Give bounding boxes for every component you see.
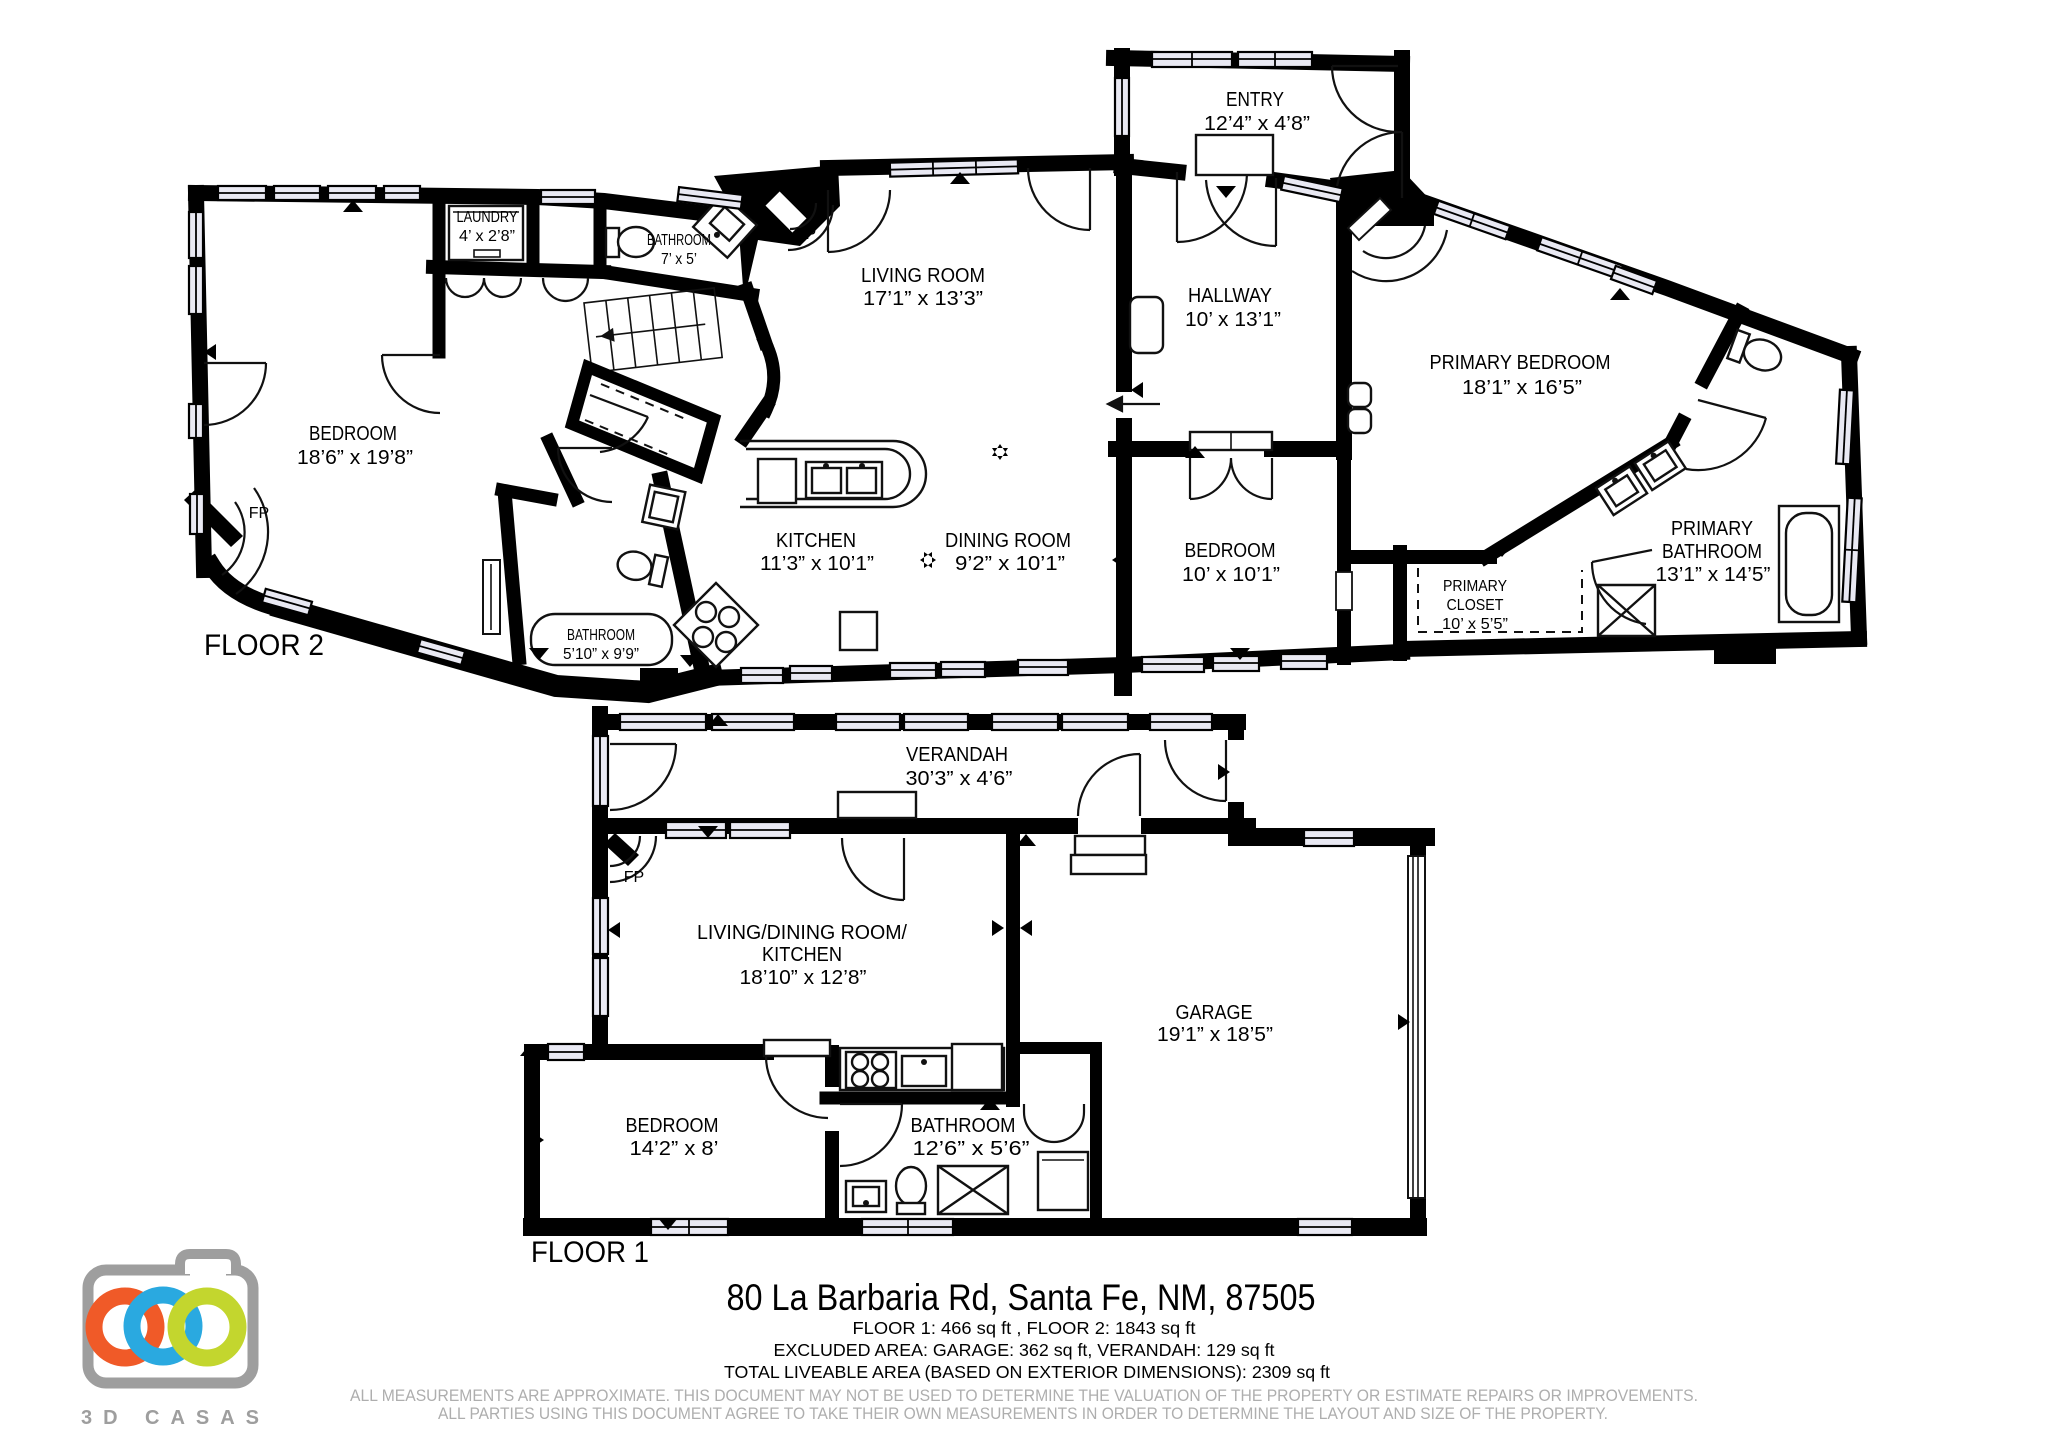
svg-text:5’10” x 9’9”: 5’10” x 9’9” bbox=[563, 646, 639, 663]
svg-text:BEDROOM: BEDROOM bbox=[309, 423, 397, 445]
svg-text:FLOOR 1: 466 sq ft , FLOOR 2:: FLOOR 1: 466 sq ft , FLOOR 2: 1843 sq ft bbox=[853, 1318, 1196, 1338]
svg-text:18’1” x 16’5”: 18’1” x 16’5” bbox=[1462, 377, 1582, 399]
svg-text:CLOSET: CLOSET bbox=[1447, 597, 1504, 614]
svg-text:LIVING ROOM: LIVING ROOM bbox=[861, 265, 985, 287]
svg-text:12’6” x 5’6”: 12’6” x 5’6” bbox=[913, 1138, 1030, 1160]
svg-text:BATHROOM: BATHROOM bbox=[567, 627, 635, 644]
svg-text:FLOOR 2: FLOOR 2 bbox=[204, 629, 324, 662]
svg-text:18’6” x 19’8”: 18’6” x 19’8” bbox=[297, 447, 413, 469]
svg-text:BATHROOM: BATHROOM bbox=[911, 1115, 1016, 1137]
svg-text:FP: FP bbox=[796, 226, 816, 243]
svg-text:3D CASAS: 3D CASAS bbox=[81, 1407, 259, 1429]
svg-text:LIVING/DINING ROOM/: LIVING/DINING ROOM/ bbox=[697, 922, 907, 944]
svg-text:BEDROOM: BEDROOM bbox=[626, 1115, 719, 1137]
svg-text:7’ x 5’: 7’ x 5’ bbox=[661, 251, 697, 268]
svg-text:EXCLUDED AREA: GARAGE: 362 sq: EXCLUDED AREA: GARAGE: 362 sq ft, VERAND… bbox=[774, 1340, 1275, 1360]
svg-text:9’2” x 10’1”: 9’2” x 10’1” bbox=[955, 553, 1065, 575]
svg-text:FP: FP bbox=[249, 505, 269, 522]
svg-text:ALL PARTIES USING THIS DOCUMEN: ALL PARTIES USING THIS DOCUMENT AGREE TO… bbox=[438, 1405, 1608, 1423]
svg-text:HALLWAY: HALLWAY bbox=[1188, 285, 1272, 307]
svg-text:ALL MEASUREMENTS ARE APPROXIMA: ALL MEASUREMENTS ARE APPROXIMATE. THIS D… bbox=[350, 1387, 1698, 1405]
svg-text:14’2” x 8’: 14’2” x 8’ bbox=[630, 1138, 719, 1160]
svg-text:12’4” x 4’8”: 12’4” x 4’8” bbox=[1204, 113, 1310, 135]
svg-text:10’ x 13’1”: 10’ x 13’1” bbox=[1185, 309, 1281, 331]
svg-text:BATHROOM: BATHROOM bbox=[1662, 541, 1762, 563]
svg-text:10’ x 10’1”: 10’ x 10’1” bbox=[1182, 564, 1280, 586]
svg-text:FLOOR 1: FLOOR 1 bbox=[531, 1236, 649, 1269]
svg-text:10’ x 5’5”: 10’ x 5’5” bbox=[1442, 616, 1508, 633]
svg-text:GARAGE: GARAGE bbox=[1176, 1002, 1253, 1024]
svg-text:BATHROOM: BATHROOM bbox=[647, 232, 711, 249]
svg-text:TOTAL LIVEABLE AREA (BASED ON: TOTAL LIVEABLE AREA (BASED ON EXTERIOR D… bbox=[724, 1362, 1330, 1382]
svg-text:19’1” x 18’5”: 19’1” x 18’5” bbox=[1157, 1024, 1273, 1046]
svg-text:80 La Barbaria Rd, Santa Fe, N: 80 La Barbaria Rd, Santa Fe, NM, 87505 bbox=[727, 1277, 1316, 1318]
svg-text:BEDROOM: BEDROOM bbox=[1185, 540, 1276, 562]
svg-text:FP: FP bbox=[624, 869, 644, 886]
svg-text:LAUNDRY: LAUNDRY bbox=[457, 209, 518, 226]
svg-text:KITCHEN: KITCHEN bbox=[776, 530, 856, 552]
svg-text:30’3” x 4’6”: 30’3” x 4’6” bbox=[906, 768, 1013, 790]
svg-text:PRIMARY: PRIMARY bbox=[1671, 518, 1753, 540]
svg-text:VERANDAH: VERANDAH bbox=[906, 744, 1008, 766]
svg-text:PRIMARY: PRIMARY bbox=[1443, 578, 1507, 595]
svg-text:4’ x 2’8”: 4’ x 2’8” bbox=[459, 228, 515, 245]
svg-text:17’1” x 13’3”: 17’1” x 13’3” bbox=[863, 288, 983, 310]
svg-text:13’1” x 14’5”: 13’1” x 14’5” bbox=[1656, 564, 1771, 586]
svg-text:ENTRY: ENTRY bbox=[1226, 89, 1284, 111]
svg-text:18’10” x 12’8”: 18’10” x 12’8” bbox=[740, 967, 867, 989]
svg-text:11’3” x 10’1”: 11’3” x 10’1” bbox=[760, 553, 874, 575]
svg-text:KITCHEN: KITCHEN bbox=[762, 944, 842, 966]
svg-text:DINING ROOM: DINING ROOM bbox=[945, 530, 1071, 552]
svg-text:PRIMARY BEDROOM: PRIMARY BEDROOM bbox=[1430, 352, 1611, 374]
